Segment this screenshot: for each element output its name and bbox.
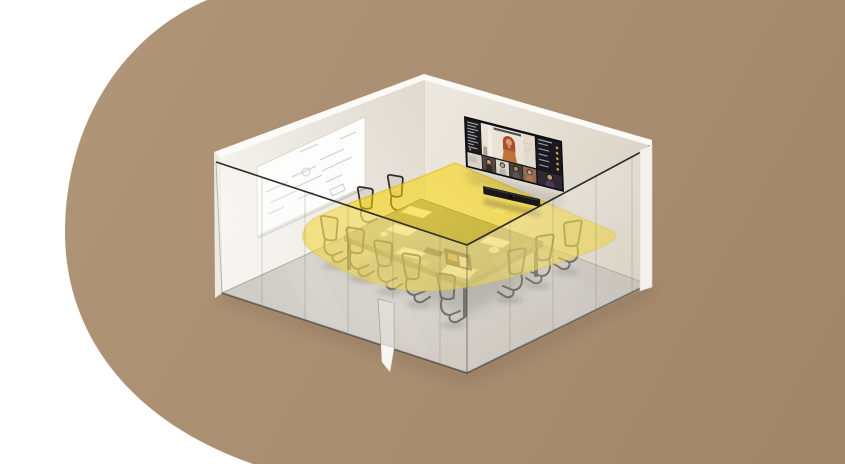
meeting-room-illustration: Isometric glass-walled meeting room with… (0, 0, 845, 464)
tv-left-panel (466, 119, 482, 169)
corner-post (640, 145, 652, 291)
tv-roster-panel (536, 137, 561, 175)
plant-icon (483, 146, 487, 155)
illustration-canvas: Isometric glass-walled meeting room with… (0, 0, 845, 464)
